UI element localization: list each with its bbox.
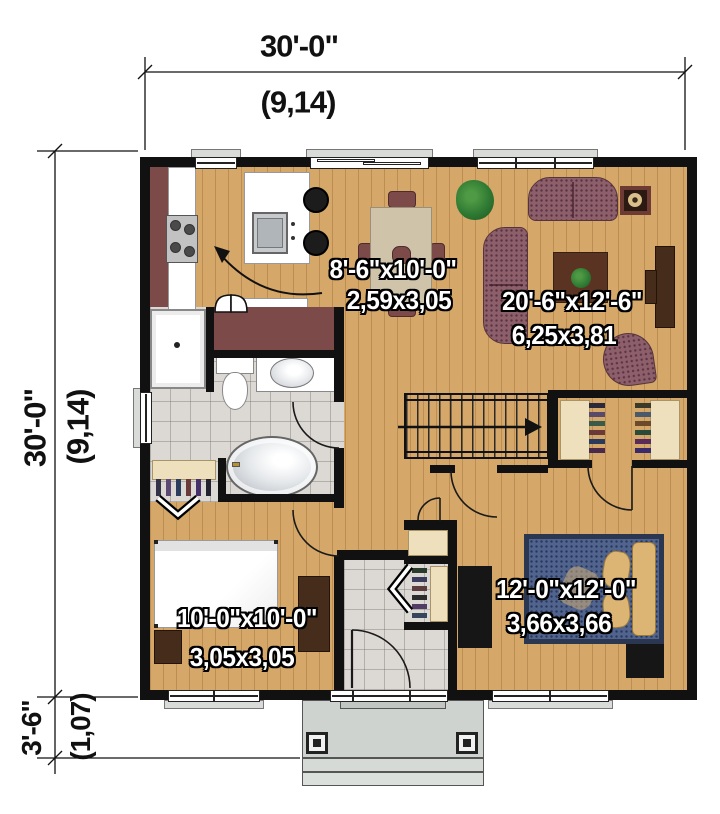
coat-closet-door-arc xyxy=(418,498,440,520)
room-label-bedroom-metric: 3,05x3,05 xyxy=(190,644,295,670)
dim-left-imperial: 30'-0" xyxy=(20,389,51,467)
room-label-living-imperial: 20'-6"x12'-6" xyxy=(502,288,642,314)
linework-overlay xyxy=(0,0,720,814)
stair-arrow xyxy=(398,418,542,436)
room-label-master-metric: 3,66x3,66 xyxy=(507,610,612,636)
kitchen-arrow xyxy=(214,246,322,294)
closet-door-arc xyxy=(588,466,632,510)
closet-chevron-down xyxy=(158,498,198,515)
master-door-arc xyxy=(451,471,497,517)
dim-left-metric: (9,14) xyxy=(63,390,94,465)
door-swing-arcs xyxy=(293,402,632,688)
room-label-master-imperial: 12'-0"x12'-0" xyxy=(496,576,636,602)
cabinet-doors-icon xyxy=(215,295,247,312)
dim-porch-imperial: 3'-6" xyxy=(18,700,46,755)
room-label-bedroom-imperial: 10'-0"x10'-0" xyxy=(177,605,317,631)
room-label-kitchen-dining-metric: 2,59x3,05 xyxy=(347,287,452,313)
front-door-arc xyxy=(352,630,410,688)
dim-porch-metric: (1,07) xyxy=(67,693,95,760)
floor-plan-canvas: 30'-0" (9,14) 30'-0" (9,14) 3'-6" (1,07)… xyxy=(0,0,720,814)
dim-top-imperial: 30'-0" xyxy=(260,31,338,62)
room-label-kitchen-dining-imperial: 8'-6"x10'-0" xyxy=(329,256,456,282)
room-label-living-metric: 6,25x3,81 xyxy=(512,322,617,348)
bathroom-door-arc xyxy=(293,402,339,448)
dim-top-metric: (9,14) xyxy=(261,87,336,118)
dimension-line-top xyxy=(138,57,692,150)
closet-chevron-left xyxy=(392,566,410,611)
bedroom-door-arc xyxy=(293,510,339,556)
